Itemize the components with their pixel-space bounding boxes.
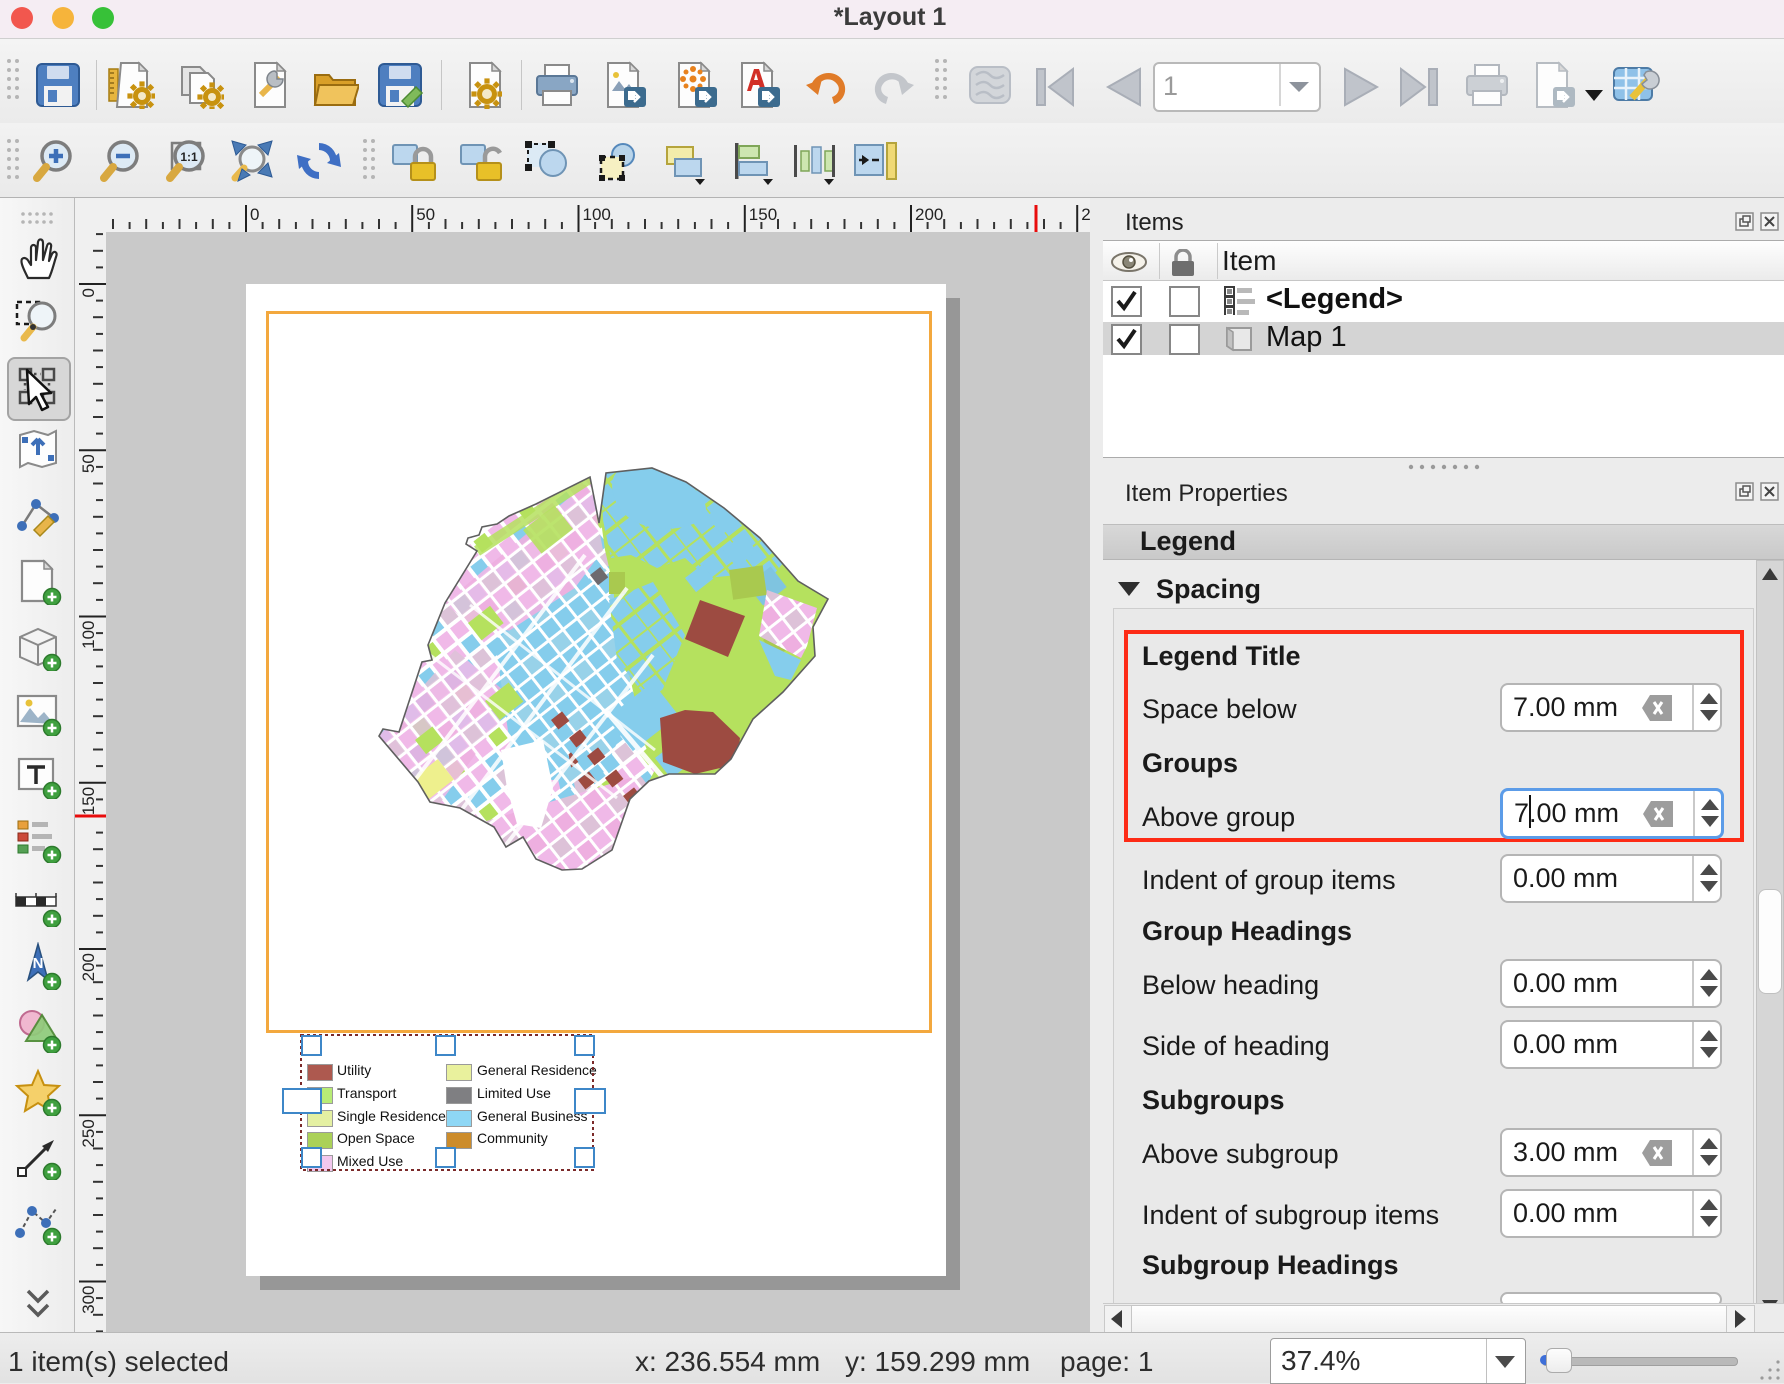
svg-text:200: 200 xyxy=(915,205,943,224)
svg-text:N: N xyxy=(33,955,44,972)
svg-text:200: 200 xyxy=(79,953,98,981)
svg-text:50: 50 xyxy=(79,454,98,473)
svg-text:150: 150 xyxy=(79,787,98,815)
svg-text:0: 0 xyxy=(79,288,98,297)
svg-text:100: 100 xyxy=(79,621,98,649)
svg-text:100: 100 xyxy=(583,205,611,224)
svg-text:250: 250 xyxy=(79,1119,98,1147)
svg-text:300: 300 xyxy=(79,1286,98,1314)
svg-text:50: 50 xyxy=(416,205,435,224)
svg-text:0: 0 xyxy=(250,205,259,224)
svg-text:150: 150 xyxy=(749,205,777,224)
svg-text:1:1: 1:1 xyxy=(180,150,198,164)
svg-text:250: 250 xyxy=(1081,205,1090,224)
